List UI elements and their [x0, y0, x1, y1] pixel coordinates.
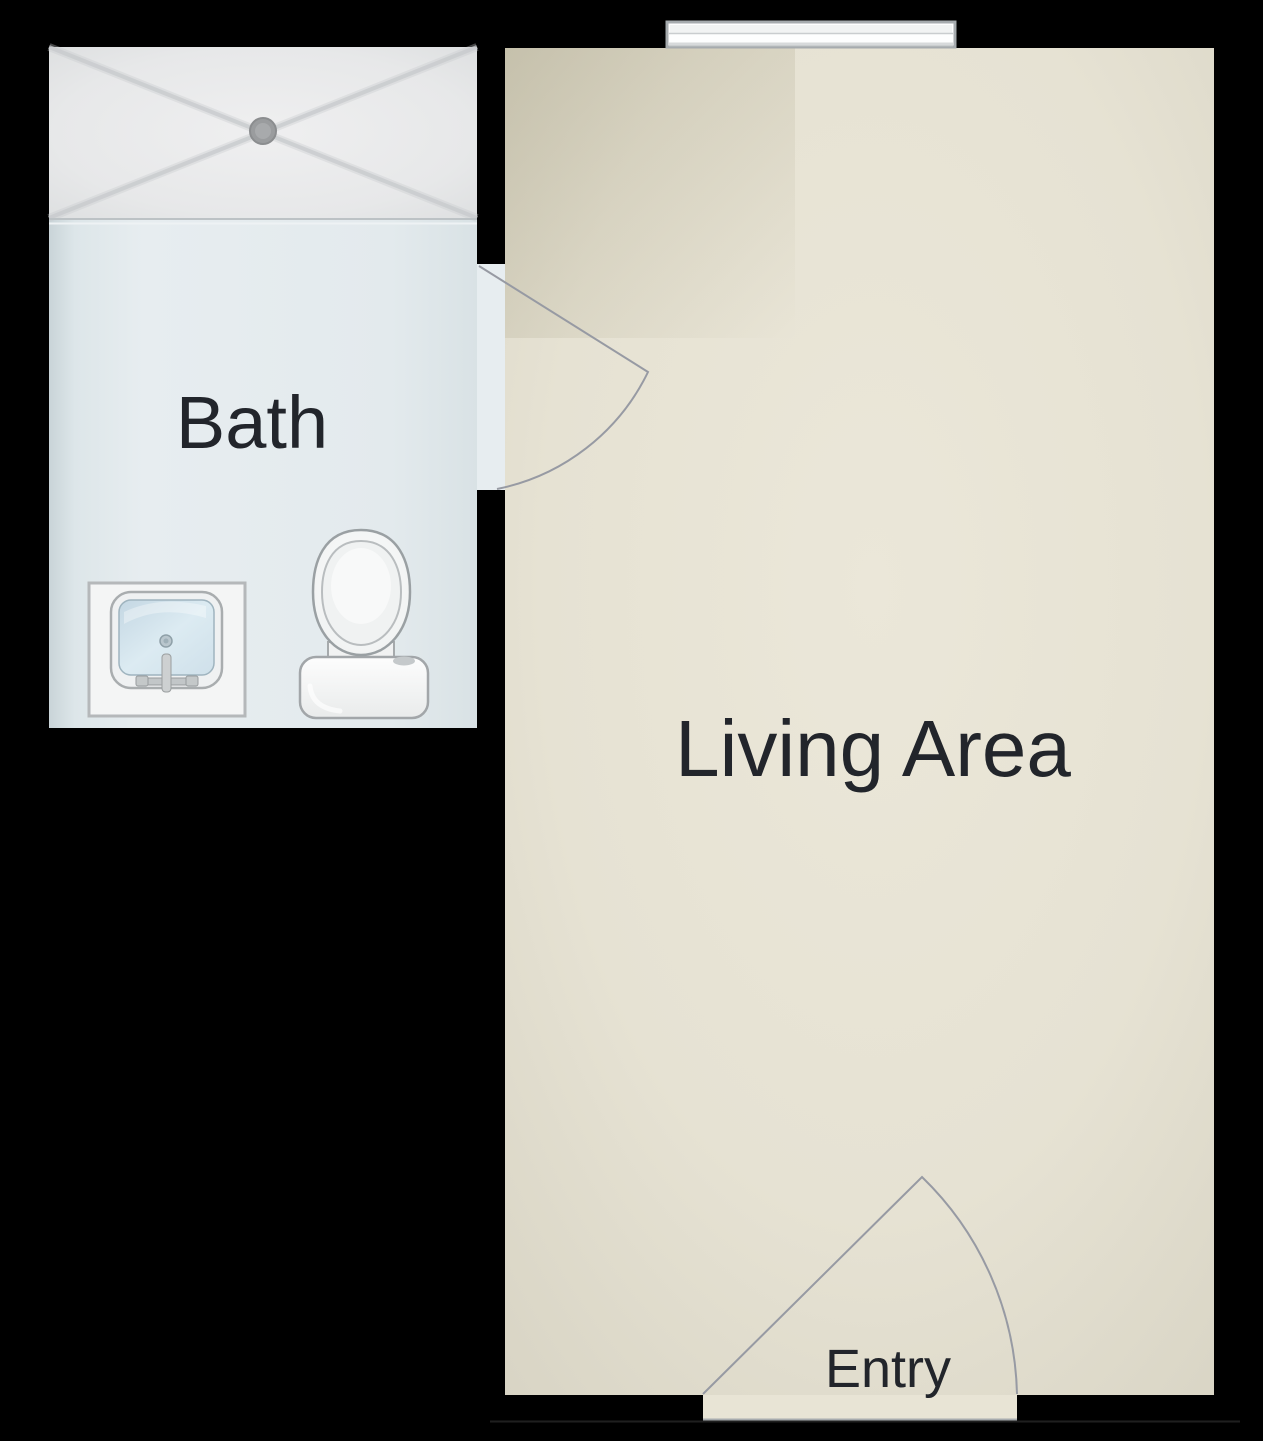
sink-drain-inner — [164, 639, 169, 644]
bath-doorway-floor — [477, 264, 505, 490]
window-sill — [669, 43, 953, 47]
window-pane-top — [670, 25, 952, 33]
sink-vanity-icon — [89, 583, 245, 716]
floor-plan-canvas: Bath Living Area Entry — [0, 0, 1263, 1441]
shower-pan-icon — [49, 47, 477, 224]
toilet-bowl-highlight — [331, 548, 391, 624]
toilet-flush-button — [393, 657, 415, 666]
shower-drain-inner — [255, 123, 271, 139]
living-room-corner-shading — [505, 48, 795, 338]
toilet-tank — [300, 657, 428, 718]
entry-label: Entry — [825, 1339, 951, 1399]
floor-plan: Bath Living Area Entry — [0, 0, 1263, 1441]
bath-room-label: Bath — [176, 381, 328, 464]
window-icon — [667, 22, 955, 47]
living-room-label: Living Area — [675, 704, 1071, 793]
